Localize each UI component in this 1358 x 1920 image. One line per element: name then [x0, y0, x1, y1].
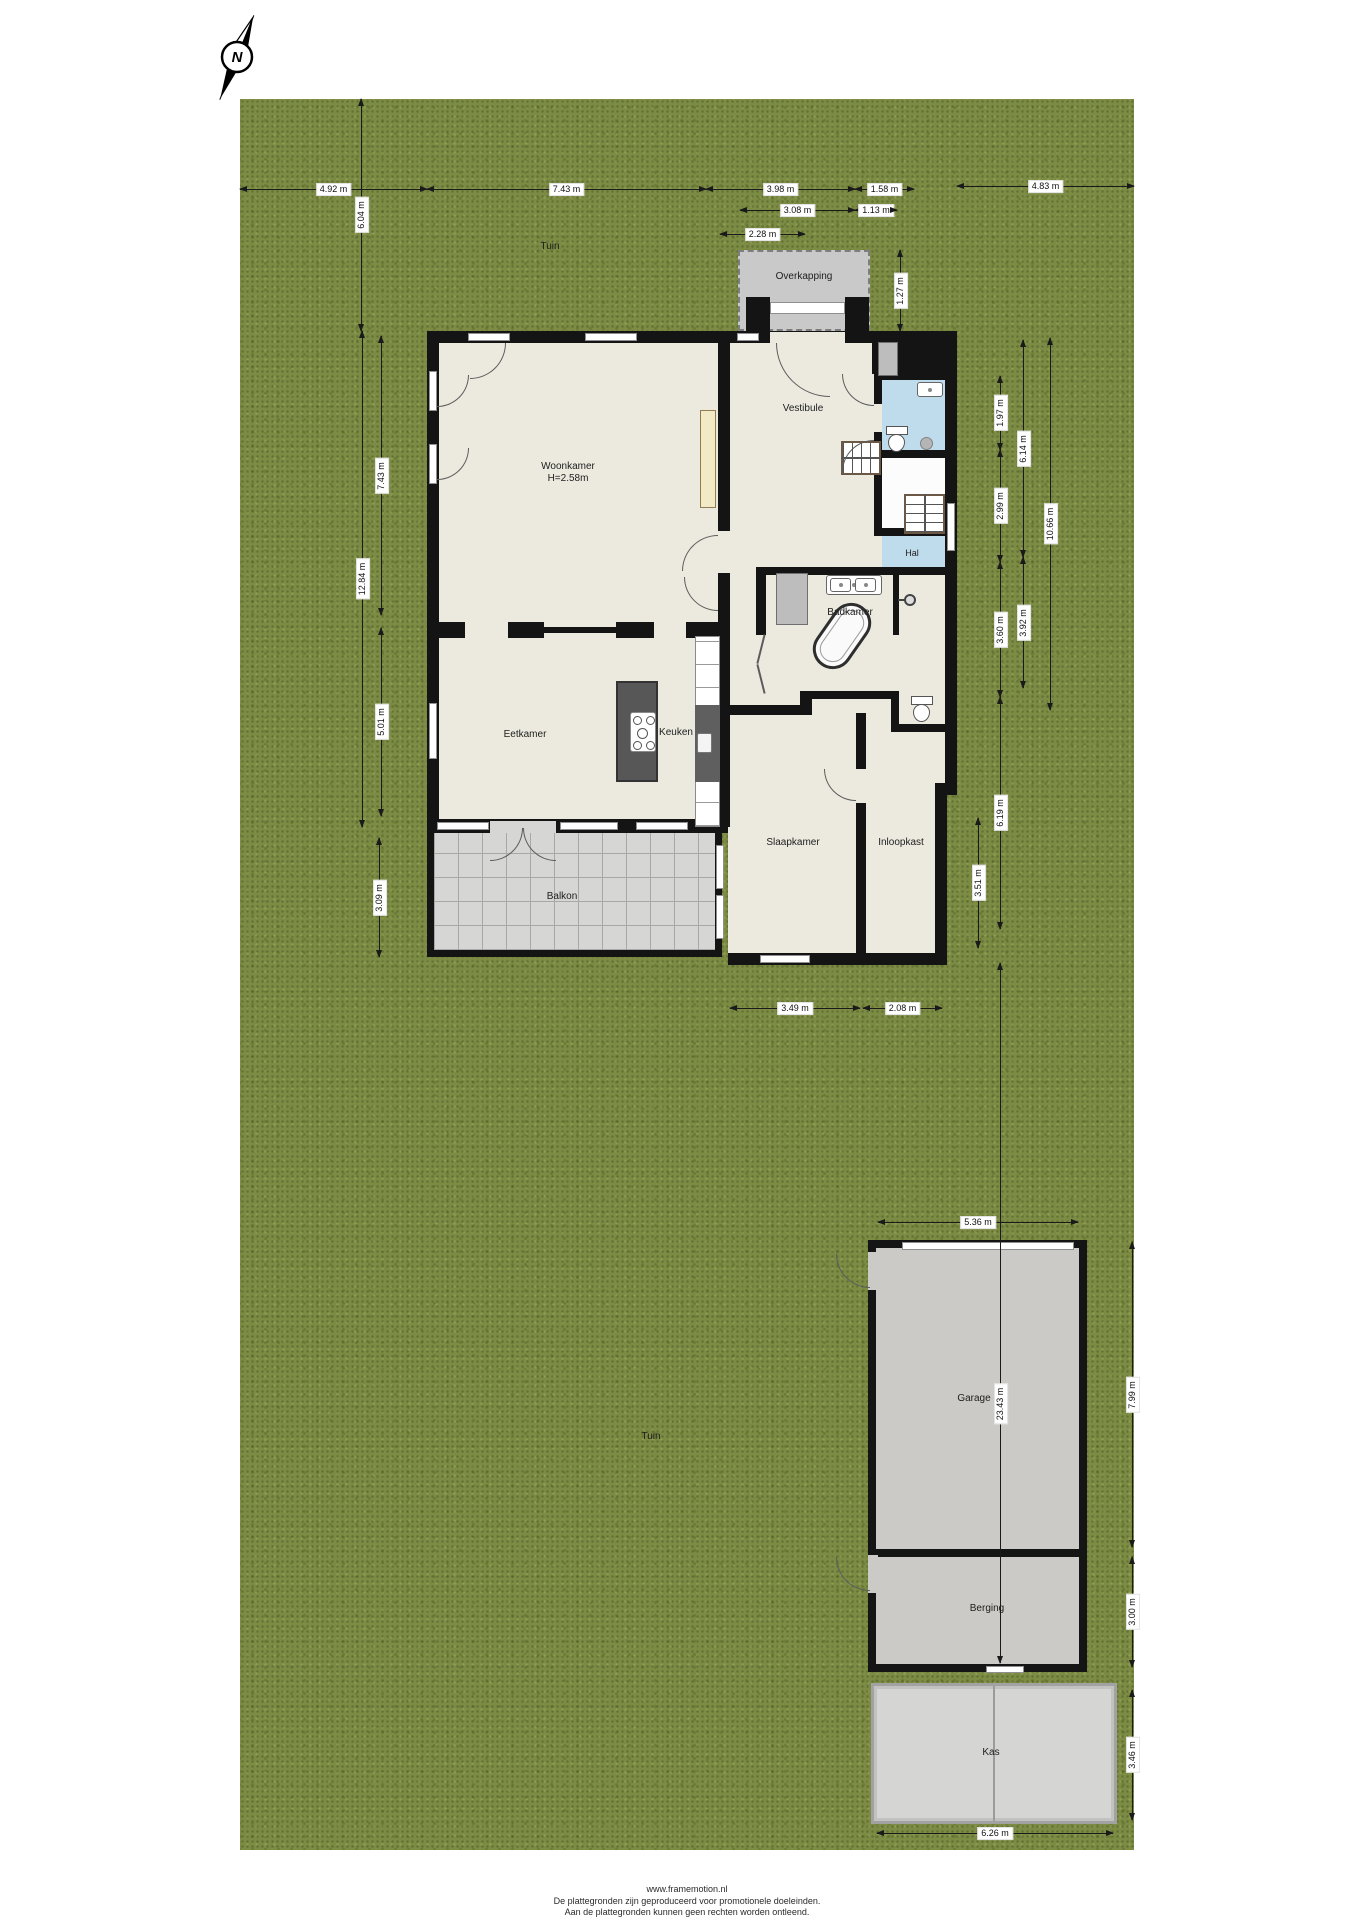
- dimension-label: 6.14 m: [1017, 431, 1031, 467]
- dimension: 1.58 m: [855, 189, 914, 190]
- dimension-label: 1.13 m: [858, 204, 894, 218]
- dimension: 3.46 m: [1132, 1690, 1133, 1820]
- dimension-label: 3.46 m: [1126, 1737, 1140, 1773]
- dimension: 23.43 m: [1000, 963, 1001, 1663]
- dimension-label: 12.84 m: [356, 559, 370, 600]
- footer: www.framemotion.nl De plattegronden zijn…: [240, 1884, 1134, 1919]
- dimension-label: 1.97 m: [994, 395, 1008, 431]
- dimension: 5.01 m: [381, 628, 382, 816]
- dimension-label: 6.19 m: [994, 795, 1008, 831]
- dimension: 6.26 m: [877, 1833, 1113, 1834]
- floorplan-page: N: [0, 0, 1358, 1920]
- dimension: 7.43 m: [381, 336, 382, 615]
- dimension: 3.08 m: [740, 210, 855, 211]
- dimension: 1.27 m: [900, 250, 901, 331]
- dimension: 6.04 m: [361, 99, 362, 331]
- dimension-label: 7.43 m: [375, 458, 389, 494]
- dimension: 3.00 m: [1132, 1557, 1133, 1667]
- dimension-label: 6.26 m: [977, 1827, 1013, 1841]
- dimension: 3.98 m: [706, 189, 855, 190]
- dimension-label: 7.99 m: [1126, 1377, 1140, 1413]
- dimension-label: 5.36 m: [960, 1216, 996, 1230]
- dimension-label: 4.92 m: [316, 183, 352, 197]
- dimension-label: 5.01 m: [375, 704, 389, 740]
- dimension-label: 3.51 m: [972, 865, 986, 901]
- dimension: 5.36 m: [878, 1222, 1078, 1223]
- dimension-label: 2.99 m: [994, 488, 1008, 524]
- dimension-label: 3.08 m: [780, 204, 816, 218]
- dimension: 3.92 m: [1023, 557, 1024, 688]
- dimension-label: 6.04 m: [355, 197, 369, 233]
- dimension: 1.13 m: [855, 210, 897, 211]
- dimension-label: 3.92 m: [1017, 605, 1031, 641]
- dimension: 3.60 m: [1000, 562, 1001, 697]
- dimension-label: 1.27 m: [894, 273, 908, 309]
- dimension: 2.08 m: [863, 1008, 942, 1009]
- dimension: 7.43 m: [427, 189, 706, 190]
- dimension-label: 23.43 m: [994, 1384, 1008, 1425]
- dimension-label: 3.98 m: [763, 183, 799, 197]
- dimension-label: 10.66 m: [1044, 504, 1058, 545]
- dimension-label: 7.43 m: [549, 183, 585, 197]
- dimension: 12.84 m: [362, 331, 363, 827]
- dimension: 2.99 m: [1000, 450, 1001, 562]
- dimension: 2.28 m: [720, 234, 805, 235]
- footer-url: www.framemotion.nl: [240, 1884, 1134, 1896]
- dimension-label: 3.00 m: [1126, 1594, 1140, 1630]
- dimension-label: 1.58 m: [867, 183, 903, 197]
- dimension: 3.51 m: [978, 818, 979, 948]
- dimension: 10.66 m: [1050, 338, 1051, 710]
- dimension: 1.97 m: [1000, 376, 1001, 450]
- dimension-label: 2.28 m: [745, 228, 781, 242]
- dimensions-layer: 4.92 m7.43 m3.98 m1.58 m4.83 m3.08 m1.13…: [0, 0, 1358, 1920]
- dimension: 4.83 m: [957, 186, 1134, 187]
- dimension-label: 3.09 m: [373, 880, 387, 916]
- dimension: 3.49 m: [730, 1008, 860, 1009]
- dimension: 3.09 m: [379, 838, 380, 957]
- dimension: 6.14 m: [1023, 340, 1024, 557]
- dimension: 6.19 m: [1000, 697, 1001, 929]
- footer-disclaimer: Aan de plattegronden kunnen geen rechten…: [240, 1907, 1134, 1919]
- dimension-label: 2.08 m: [885, 1002, 921, 1016]
- dimension: 7.99 m: [1132, 1242, 1133, 1547]
- footer-disclaimer: De plattegronden zijn geproduceerd voor …: [240, 1896, 1134, 1908]
- dimension-label: 3.49 m: [777, 1002, 813, 1016]
- dimension: 4.92 m: [240, 189, 427, 190]
- dimension-label: 3.60 m: [994, 612, 1008, 648]
- dimension-label: 4.83 m: [1028, 180, 1064, 194]
